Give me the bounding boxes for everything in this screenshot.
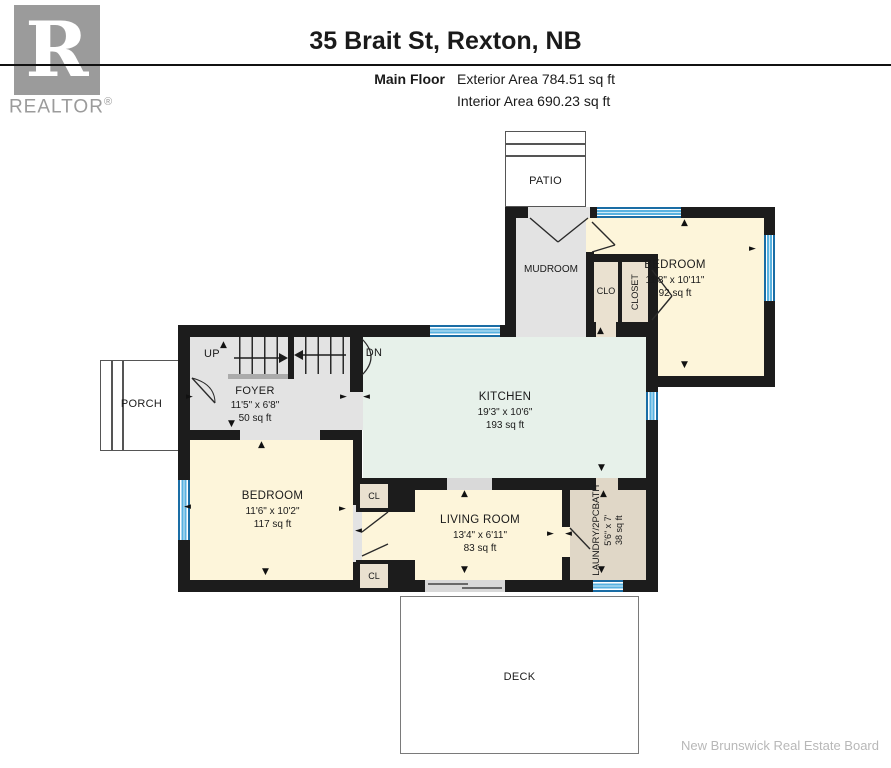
window-kitchen-top [430,325,500,337]
opening-arrow-icon: ◄ [355,527,362,536]
room-label-mudroom: MUDROOM [516,263,586,277]
closet-top-box: CL [356,480,392,512]
opening-arrow-icon: ▲ [600,490,607,499]
opening-arrow-icon: ◄ [565,530,572,539]
opening-arrow-icon: ▲ [597,327,604,336]
opening-arrow-icon: ▲ [258,441,265,450]
opening-arrow-icon: ▼ [598,566,605,575]
room-label-deck: DECK [400,670,639,685]
opening-arrow-icon: ▼ [228,420,235,429]
opening-foyer-kitchen [350,392,363,430]
realtor-logo: R [14,5,100,95]
registered-mark: ® [104,96,113,108]
opening-arrow-icon: ▼ [461,566,468,575]
wall [178,337,190,480]
wall [646,376,775,387]
opening-arrow-icon: ► [339,505,346,514]
room-label-porch: PORCH [104,397,179,412]
floor-mudroom [516,218,586,337]
wall [492,478,562,490]
room-block-bedroom-ne: BEDROOM 11'8" x 10'11" 92 sq ft [600,258,750,301]
room-label-cl-bottom: CL [360,564,388,588]
patio-step-line [506,143,585,145]
room-block-foyer: FOYER 11'5" x 6'8" 50 sq ft [200,384,310,426]
wall [505,218,516,337]
page-title: 35 Brait St, Rexton, NB [0,27,891,56]
opening-arrow-icon: ▲ [220,341,227,350]
closet-bottom-box: CL [356,560,392,592]
window-kitchen-right [646,392,658,420]
room-area-bedroom-sw: 117 sq ft [195,518,350,532]
room-label-foyer: FOYER [200,384,310,399]
room-label-cl-top: CL [360,484,388,508]
room-area-foyer: 50 sq ft [200,412,310,426]
patio-step-line [506,155,585,157]
room-label-clo: CLO [590,285,622,297]
wall [190,430,240,440]
room-area-laundry: 38 sq ft [614,478,625,582]
room-block-kitchen: KITCHEN 19'3" x 10'6" 193 sq ft [430,390,580,433]
wall [562,557,570,580]
patio-area [505,131,586,207]
door-opening-patio [528,207,590,218]
wall [623,580,658,592]
wall [500,325,516,337]
board-attribution: New Brunswick Real Estate Board [681,738,879,753]
opening-arrow-icon: ► [186,393,193,402]
opening-kitchen-living [447,478,492,490]
room-block-laundry: LAUNDRY/2PCBATH 5'6" x 7' 38 sq ft [591,478,625,582]
wall [505,580,593,592]
opening-arrow-icon: ► [547,530,554,539]
room-area-living-room: 83 sq ft [405,542,555,556]
room-label-bedroom-sw: BEDROOM [195,489,350,505]
window-bedroom-ne-top [597,207,681,218]
wall [646,420,658,580]
wall [320,430,353,440]
wall [178,325,430,337]
header-divider [0,64,891,66]
opening-arrow-icon: ► [340,393,347,402]
room-label-closet: CLOSET [629,262,641,322]
room-label-bedroom-ne: BEDROOM [600,258,750,274]
exterior-area: Exterior Area 784.51 sq ft [457,71,717,87]
room-block-living-room: LIVING ROOM 13'4" x 6'11" 83 sq ft [405,513,555,556]
opening-arrow-icon: ◄ [363,393,370,402]
room-label-living-room: LIVING ROOM [405,513,555,529]
realtor-logo-text: REALTOR [9,96,104,117]
room-dims-bedroom-ne: 11'8" x 10'11" [600,274,750,288]
wall [390,478,415,512]
room-area-kitchen: 193 sq ft [430,419,580,433]
room-dims-foyer: 11'5" x 6'8" [200,399,310,413]
interior-area: Interior Area 690.23 sq ft [457,93,717,109]
opening-arrow-icon: ▲ [681,219,688,228]
realtor-logo-wordmark: REALTOR® [0,96,122,118]
room-block-bedroom-sw: BEDROOM 11'6" x 10'2" 117 sq ft [195,489,350,532]
wall [562,490,570,527]
room-dims-kitchen: 19'3" x 10'6" [430,406,580,420]
opening-arrow-icon: ▼ [262,568,269,577]
window-bedroom-ne-right [764,235,775,301]
room-dims-bedroom-sw: 11'6" x 10'2" [195,505,350,519]
room-area-bedroom-ne: 92 sq ft [600,287,750,301]
opening-arrow-icon: ◄ [184,503,191,512]
stairs-up-landing [228,374,288,379]
stairs-up [228,337,288,379]
floor-label: Main Floor [330,71,445,87]
opening-arrow-icon: ▼ [681,361,688,370]
opening-arrow-icon: ► [749,245,756,254]
realtor-logo-letter: R [25,12,88,88]
room-dims-living-room: 13'4" x 6'11" [405,529,555,543]
sliding-door-deck [425,580,505,592]
opening-foyer-bedroom [240,430,320,440]
wall [646,337,658,392]
opening-arrow-icon: ▼ [598,464,605,473]
room-label-patio: PATIO [505,174,586,189]
stairs-down-label: DN [360,346,388,361]
room-label-kitchen: KITCHEN [430,390,580,406]
wall [390,560,415,592]
opening-mudroom-kitchen [516,325,586,337]
opening-arrow-icon: ▲ [461,490,468,499]
stairs-down [294,337,350,374]
